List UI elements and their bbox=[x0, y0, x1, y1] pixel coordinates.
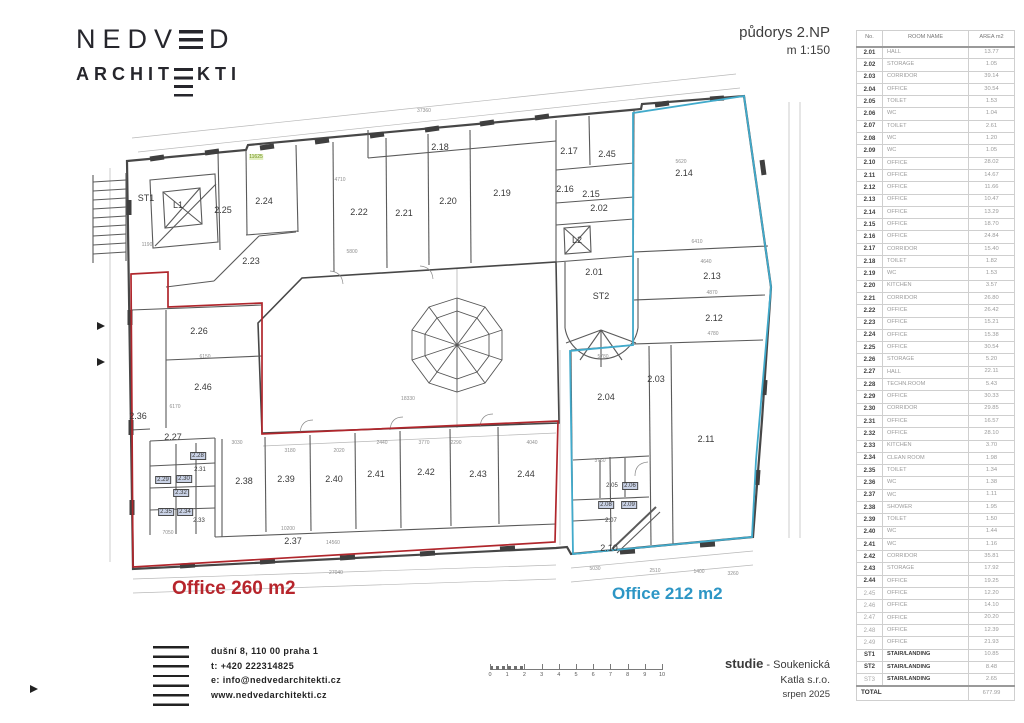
project-type: studie bbox=[725, 656, 763, 671]
room-number-label: 2.16 bbox=[556, 184, 574, 194]
room-number-label: 2.22 bbox=[350, 207, 368, 217]
contact-line: e: info@nedvedarchitekti.cz bbox=[211, 675, 341, 685]
room-number-label: 2.09 bbox=[621, 501, 637, 509]
room-number-label: 2.05 bbox=[606, 483, 618, 489]
scale-number: 9 bbox=[643, 672, 646, 678]
scale-number: 2 bbox=[523, 672, 526, 678]
dimension-label: 6170 bbox=[169, 404, 180, 410]
scale-number: 10 bbox=[659, 672, 665, 678]
dimension-label: 6150 bbox=[199, 354, 210, 360]
room-number-label: 2.30 bbox=[176, 475, 192, 483]
room-number-label: 2.45 bbox=[598, 149, 616, 159]
project-date: srpen 2025 bbox=[725, 689, 830, 700]
courtyard-skylight bbox=[412, 298, 502, 392]
room-number-label: 2.44 bbox=[517, 469, 535, 479]
room-number-label: 2.17 bbox=[560, 146, 578, 156]
dimension-label: 14560 bbox=[326, 540, 340, 546]
dimension-label: 4870 bbox=[706, 290, 717, 296]
room-number-label: 2.13 bbox=[703, 271, 721, 281]
room-number-label: 2.32 bbox=[173, 489, 189, 497]
floor-plan-drawing bbox=[0, 0, 1024, 723]
room-number-label: 2.26 bbox=[190, 326, 208, 336]
room-number-label: 2.23 bbox=[242, 256, 260, 266]
room-number-label: L2 bbox=[572, 235, 582, 245]
room-number-label: 2.46 bbox=[194, 382, 212, 392]
scale-number: 3 bbox=[540, 672, 543, 678]
dimension-label: 3770 bbox=[418, 440, 429, 446]
contact-line: dušní 8, 110 00 praha 1 bbox=[211, 646, 341, 656]
room-number-label: 2.25 bbox=[214, 205, 232, 215]
project-name: studie - Soukenická bbox=[725, 656, 830, 671]
dimension-label: 3180 bbox=[284, 448, 295, 454]
dimension-label: 2020 bbox=[333, 448, 344, 454]
room-number-label: 2.31 bbox=[194, 467, 206, 473]
scale-tick bbox=[559, 664, 560, 670]
room-number-label: 2.01 bbox=[585, 267, 603, 277]
dimension-label: 10200 bbox=[281, 526, 295, 532]
drawing-sheet: NEDVD ARCHITKTI půdorys 2.NP m 1:150 No.… bbox=[0, 0, 1024, 723]
dimension-label: 5620 bbox=[675, 159, 686, 165]
dimension-label: 27040 bbox=[329, 570, 343, 576]
scale-tick bbox=[490, 664, 491, 670]
dimension-label: 1190 bbox=[142, 242, 153, 248]
dimension-label: 5800 bbox=[346, 249, 357, 255]
logo-bars-icon bbox=[153, 646, 189, 710]
room-number-label: 2.39 bbox=[277, 474, 295, 484]
room-number-label: 2.04 bbox=[597, 392, 615, 402]
room-number-label: 2.12 bbox=[705, 313, 723, 323]
dimension-label: 4040 bbox=[526, 440, 537, 446]
dimension-label: 4710 bbox=[334, 177, 345, 183]
contact-line: www.nedvedarchitekti.cz bbox=[211, 690, 341, 700]
room-number-label: 2.36 bbox=[129, 411, 147, 421]
room-number-label: 2.38 bbox=[235, 476, 253, 486]
scale-tick bbox=[524, 664, 525, 670]
room-number-label: 2.29 bbox=[155, 476, 171, 484]
dimension-label: 3030 bbox=[231, 440, 242, 446]
scale-tick bbox=[610, 664, 611, 670]
dimension-label: 5030 bbox=[589, 566, 600, 572]
office-blue-area-label: Office 212 m2 bbox=[612, 584, 723, 604]
room-number-label: 2.14 bbox=[675, 168, 693, 178]
scale-tick bbox=[645, 664, 646, 670]
project-block: studie - Soukenická Katla s.r.o. srpen 2… bbox=[725, 656, 830, 700]
room-number-label: ST1 bbox=[138, 193, 155, 203]
room-number-label: 2.43 bbox=[469, 469, 487, 479]
dimension-label: 6410 bbox=[691, 239, 702, 245]
project-client: Katla s.r.o. bbox=[725, 674, 830, 686]
scale-tick bbox=[576, 664, 577, 670]
dimension-label: 2290 bbox=[450, 440, 461, 446]
scale-tick bbox=[593, 664, 594, 670]
contact-line: t: +420 222314825 bbox=[211, 661, 341, 671]
room-number-label: 2.20 bbox=[439, 196, 457, 206]
contact-block: dušní 8, 110 00 praha 1t: +420 222314825… bbox=[153, 646, 341, 710]
dimension-label: 4640 bbox=[700, 259, 711, 265]
scale-number: 7 bbox=[609, 672, 612, 678]
room-number-label: 2.27 bbox=[164, 432, 182, 442]
room-number-label: 2.35 bbox=[158, 508, 174, 516]
room-number-label: 2.03 bbox=[647, 374, 665, 384]
room-number-label: 2.33 bbox=[193, 518, 205, 524]
walls-outer bbox=[127, 96, 771, 569]
room-number-label: 2.34 bbox=[177, 508, 193, 516]
room-number-label: 2.42 bbox=[417, 467, 435, 477]
scale-tick bbox=[662, 664, 663, 670]
dimension-label: 2510 bbox=[649, 568, 660, 574]
walls-courtyard bbox=[258, 262, 559, 433]
scale-number: 1 bbox=[506, 672, 509, 678]
room-number-label: 2.24 bbox=[255, 196, 273, 206]
dimension-label: 2440 bbox=[376, 440, 387, 446]
room-number-label: L1 bbox=[173, 200, 183, 210]
project-street: - Soukenická bbox=[763, 659, 830, 671]
dimension-label: 7050 bbox=[162, 530, 173, 536]
scale-number: 0 bbox=[488, 672, 491, 678]
room-number-label: 2.07 bbox=[605, 518, 617, 524]
room-number-label: 2.08 bbox=[598, 501, 614, 509]
scale-tick bbox=[507, 664, 508, 670]
room-number-label: 2.02 bbox=[590, 203, 608, 213]
dimension-label: 18330 bbox=[401, 396, 415, 402]
dimension-label: 4780 bbox=[707, 331, 718, 337]
dimension-label: 1400 bbox=[693, 569, 704, 575]
scale-number: 6 bbox=[592, 672, 595, 678]
room-number-label: 2.41 bbox=[367, 469, 385, 479]
scale-tick bbox=[542, 664, 543, 670]
dimension-label: 11625 bbox=[249, 154, 263, 160]
room-number-label: 2.19 bbox=[493, 188, 511, 198]
arrow-markers bbox=[30, 322, 105, 693]
room-number-label: 2.11 bbox=[698, 434, 715, 444]
scale-number: 8 bbox=[626, 672, 629, 678]
room-number-label: 2.37 bbox=[284, 536, 302, 546]
room-number-label: 2.40 bbox=[325, 474, 343, 484]
room-number-label: ST2 bbox=[593, 291, 610, 301]
room-number-label: 2.06 bbox=[622, 482, 638, 490]
scale-tick bbox=[628, 664, 629, 670]
room-number-label: 2.21 bbox=[395, 208, 413, 218]
room-number-label: 2.28 bbox=[190, 452, 206, 460]
contact-lines: dušní 8, 110 00 praha 1t: +420 222314825… bbox=[211, 646, 341, 710]
dimension-label: 37360 bbox=[417, 108, 431, 114]
room-number-label: 2.15 bbox=[582, 189, 600, 199]
room-number-label: 2.18 bbox=[431, 142, 449, 152]
room-number-label: 2.10 bbox=[600, 543, 618, 553]
dimension-label: 3260 bbox=[727, 571, 738, 577]
dimension-label: 5780 bbox=[597, 354, 608, 360]
scale-bar: 012345678910 bbox=[490, 660, 670, 680]
dimension-label: 3750 bbox=[594, 458, 605, 464]
office-red-area-label: Office 260 m2 bbox=[172, 578, 296, 600]
scale-number: 5 bbox=[574, 672, 577, 678]
scale-number: 4 bbox=[557, 672, 560, 678]
